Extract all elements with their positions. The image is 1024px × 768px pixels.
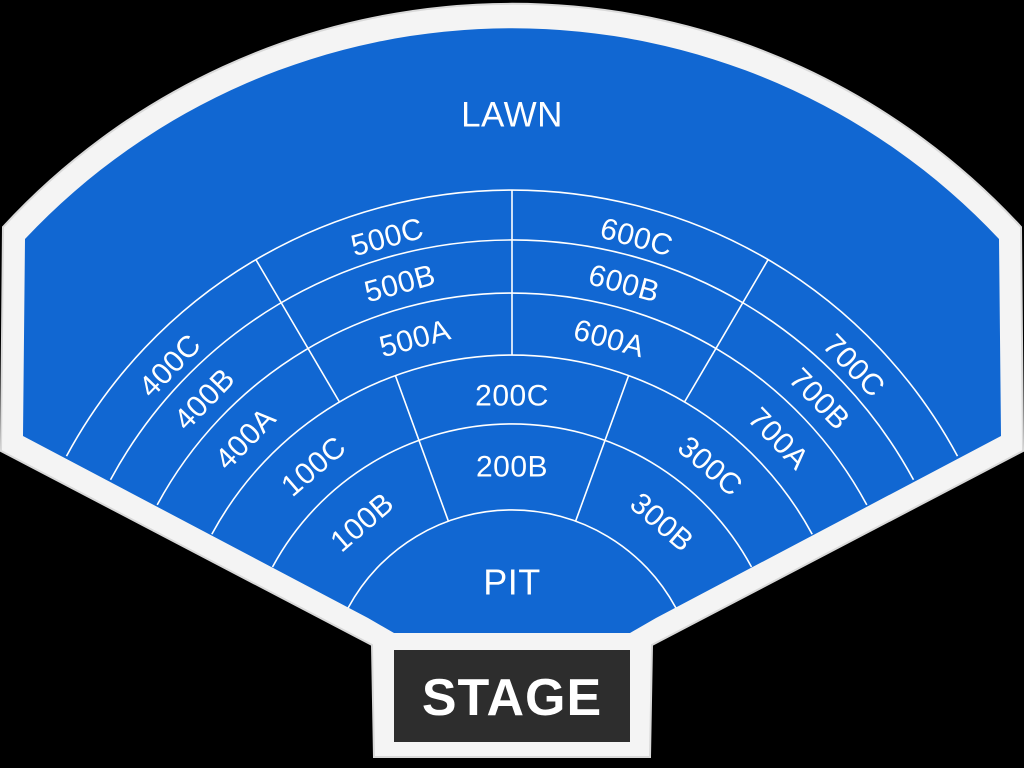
seat-map-page: LAWN500C500B500A600C600B600A400C400B400A… <box>0 0 1024 768</box>
section-label-lawn[interactable]: LAWN <box>461 96 563 135</box>
section-label-200b[interactable]: 200B <box>476 451 548 484</box>
seat-map-canvas[interactable]: LAWN500C500B500A600C600B600A400C400B400A… <box>0 0 1024 768</box>
section-label-pit[interactable]: PIT <box>483 562 541 603</box>
stage-label: STAGE <box>422 669 602 727</box>
section-label-200c[interactable]: 200C <box>475 380 549 413</box>
